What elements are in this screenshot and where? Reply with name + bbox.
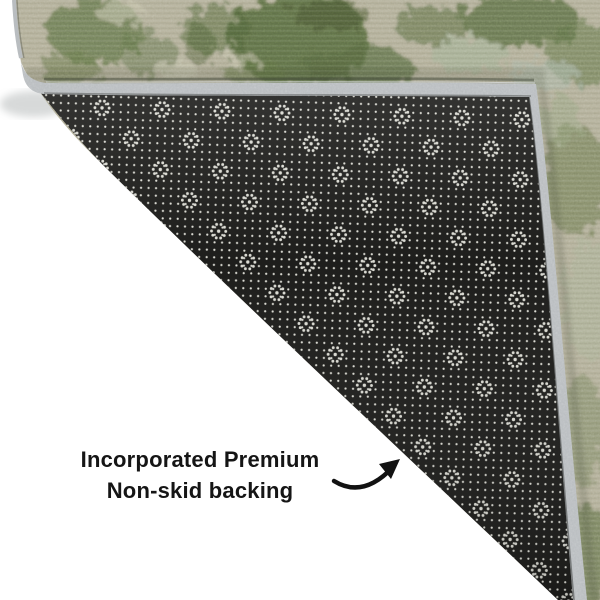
caption: Incorporated Premium Non-skid backing: [55, 444, 345, 506]
caption-line-2: Non-skid backing: [55, 475, 345, 506]
product-photo: Incorporated Premium Non-skid backing: [0, 0, 600, 600]
caption-line-1: Incorporated Premium: [55, 444, 345, 475]
top-seam-shadow: [44, 79, 534, 80]
rug-photo-illustration: [0, 0, 600, 600]
